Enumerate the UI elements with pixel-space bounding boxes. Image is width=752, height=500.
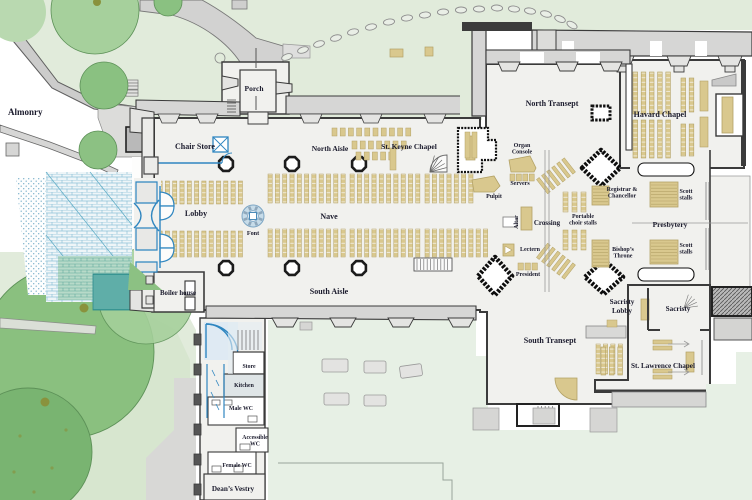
svg-text:President: President (516, 272, 540, 278)
svg-text:Crossing: Crossing (534, 219, 561, 227)
svg-text:Boiler house: Boiler house (160, 290, 196, 297)
svg-text:Registrar &Chancellor: Registrar &Chancellor (607, 187, 638, 200)
svg-text:Altar: Altar (514, 215, 520, 229)
svg-text:Kitchen: Kitchen (234, 383, 254, 389)
svg-text:Almonry: Almonry (8, 107, 43, 117)
svg-text:Dean’s Vestry: Dean’s Vestry (212, 485, 255, 493)
svg-text:St. Keyne Chapel: St. Keyne Chapel (381, 142, 437, 151)
svg-text:Pulpit: Pulpit (486, 194, 502, 200)
svg-text:Lectern: Lectern (520, 247, 541, 253)
svg-text:North Transept: North Transept (526, 99, 579, 108)
svg-text:Male WC: Male WC (229, 406, 253, 412)
svg-text:Portablechoir stalls: Portablechoir stalls (569, 214, 597, 227)
svg-text:Chair Store: Chair Store (175, 142, 215, 151)
svg-text:Porch: Porch (244, 84, 264, 93)
svg-text:Font: Font (247, 230, 260, 237)
svg-text:OrganConsole: OrganConsole (512, 143, 533, 156)
svg-text:South Transept: South Transept (524, 336, 577, 345)
svg-text:Havard Chapel: Havard Chapel (634, 110, 687, 119)
svg-text:North Aisle: North Aisle (312, 144, 349, 153)
svg-text:Female WC: Female WC (222, 463, 251, 469)
svg-text:Sacristy: Sacristy (666, 305, 691, 313)
svg-text:South Aisle: South Aisle (310, 287, 349, 296)
svg-text:Scottstalls: Scottstalls (679, 243, 693, 256)
svg-text:Lobby: Lobby (185, 209, 207, 218)
svg-text:Servers: Servers (510, 181, 530, 187)
svg-text:Nave: Nave (320, 212, 338, 221)
svg-text:St. Lawrence Chapel: St. Lawrence Chapel (631, 362, 695, 370)
svg-text:Store: Store (242, 364, 256, 370)
svg-text:Presbytery: Presbytery (653, 220, 688, 229)
svg-text:SacristyLobby: SacristyLobby (610, 298, 635, 315)
svg-text:Bishop’sThrone: Bishop’sThrone (612, 247, 634, 260)
svg-text:Scottstalls: Scottstalls (679, 189, 693, 202)
